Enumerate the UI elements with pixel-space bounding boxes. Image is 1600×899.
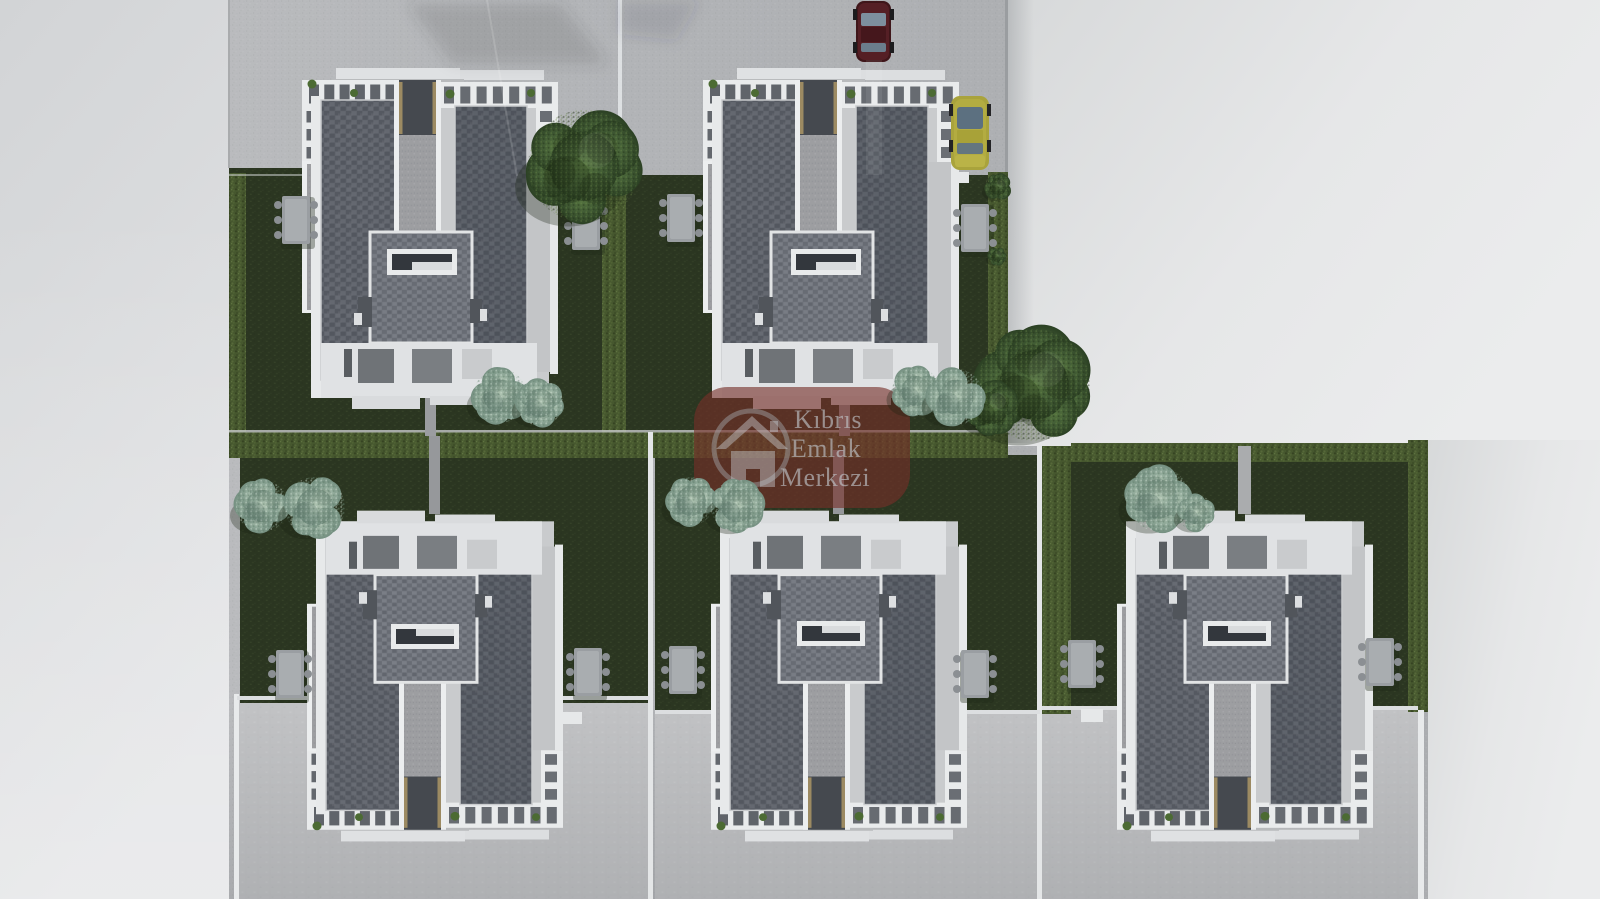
svg-text:Kıbrıs: Kıbrıs — [794, 405, 862, 434]
svg-text:Merkezi: Merkezi — [780, 463, 870, 492]
svg-text:Emlak: Emlak — [791, 434, 861, 463]
